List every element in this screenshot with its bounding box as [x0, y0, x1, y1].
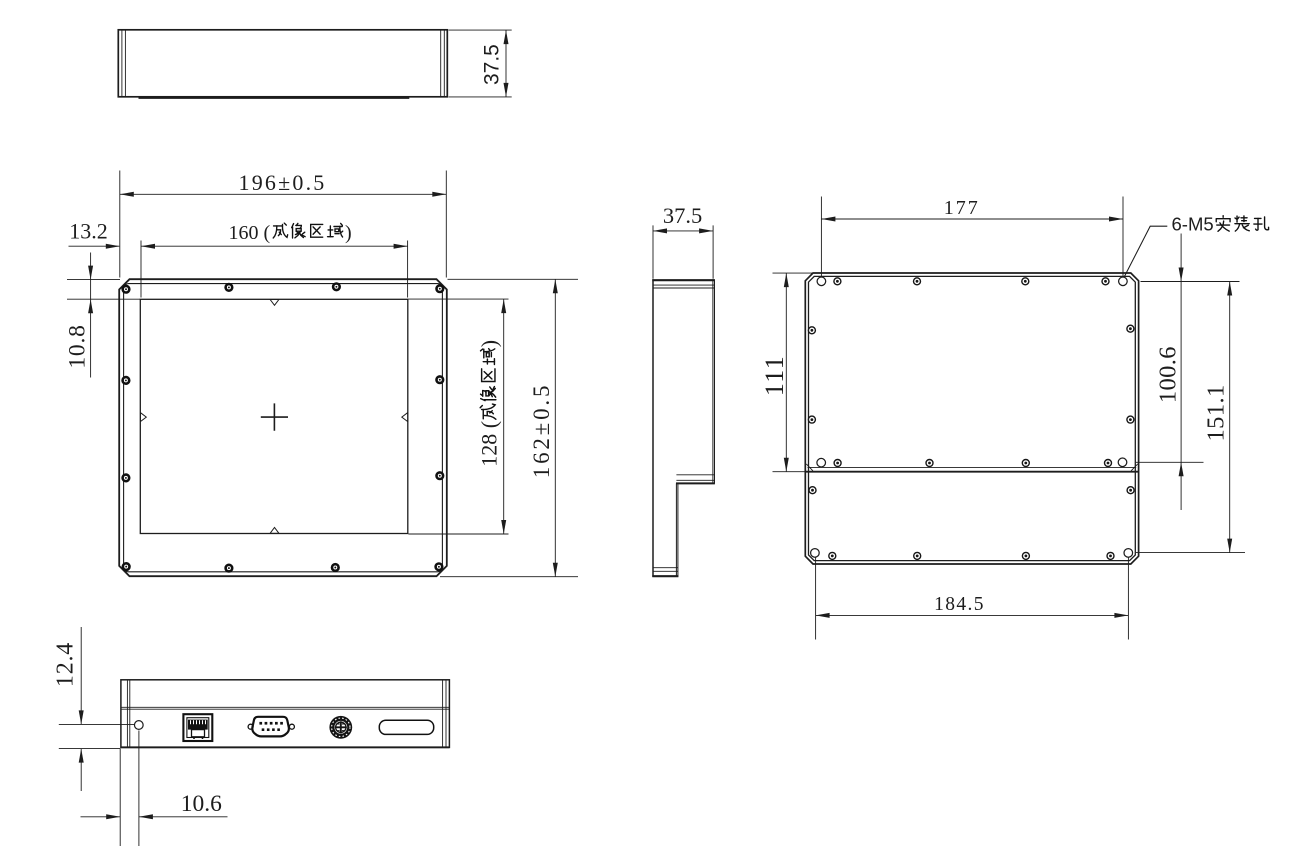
svg-text:12.4: 12.4: [53, 642, 79, 687]
svg-text:10.8: 10.8: [64, 324, 90, 368]
svg-text:184.5: 184.5: [934, 594, 985, 615]
svg-text:37.5: 37.5: [481, 44, 504, 85]
svg-text:151.1: 151.1: [1203, 384, 1230, 441]
svg-text:162±0.5: 162±0.5: [529, 383, 554, 478]
svg-text:): ): [477, 340, 502, 347]
svg-text:177: 177: [944, 197, 980, 219]
svg-text:196±0.5: 196±0.5: [239, 170, 327, 195]
svg-text:111: 111: [760, 355, 789, 396]
svg-text:6-M5: 6-M5: [1172, 214, 1214, 235]
svg-text:160 (: 160 (: [229, 222, 271, 244]
svg-text:13.2: 13.2: [69, 218, 108, 243]
svg-text:10.6: 10.6: [181, 791, 222, 817]
svg-text:128 (: 128 (: [477, 421, 502, 467]
svg-text:100.6: 100.6: [1155, 346, 1182, 403]
svg-text:): ): [345, 222, 352, 244]
svg-text:37.5: 37.5: [663, 203, 702, 228]
